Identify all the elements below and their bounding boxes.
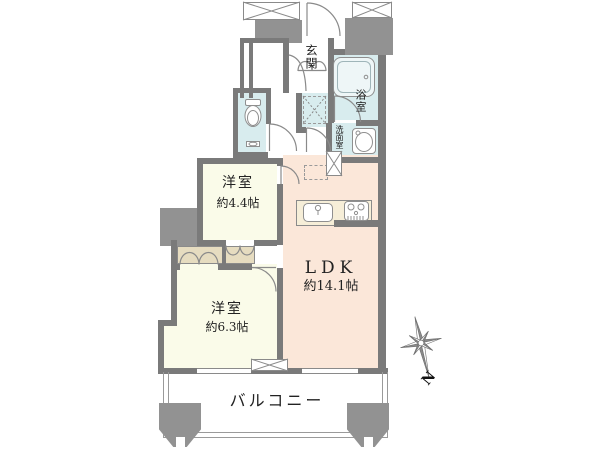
ldk-label: LDK xyxy=(283,258,379,279)
floor-plan: N 玄関 浴室 洗面室 洋室 約4.4帖 洋室 約6.3帖 LDK 約14.1帖… xyxy=(0,0,600,450)
plan-overlay: N xyxy=(0,0,600,450)
room2-label: 洋室 xyxy=(187,301,267,319)
genkan-label: 玄関 xyxy=(303,44,320,70)
bath-label: 浴室 xyxy=(352,89,368,113)
room1-label: 洋室 xyxy=(199,175,277,193)
compass-north-label: N xyxy=(419,368,440,388)
balcony-label: バルコニー xyxy=(222,391,332,411)
room1-size: 約4.4帖 xyxy=(199,196,277,211)
room2-size: 約6.3帖 xyxy=(187,320,267,335)
ldk-size: 約14.1帖 xyxy=(283,279,379,295)
washroom-label: 洗面室 xyxy=(334,125,345,149)
compass xyxy=(394,312,449,383)
